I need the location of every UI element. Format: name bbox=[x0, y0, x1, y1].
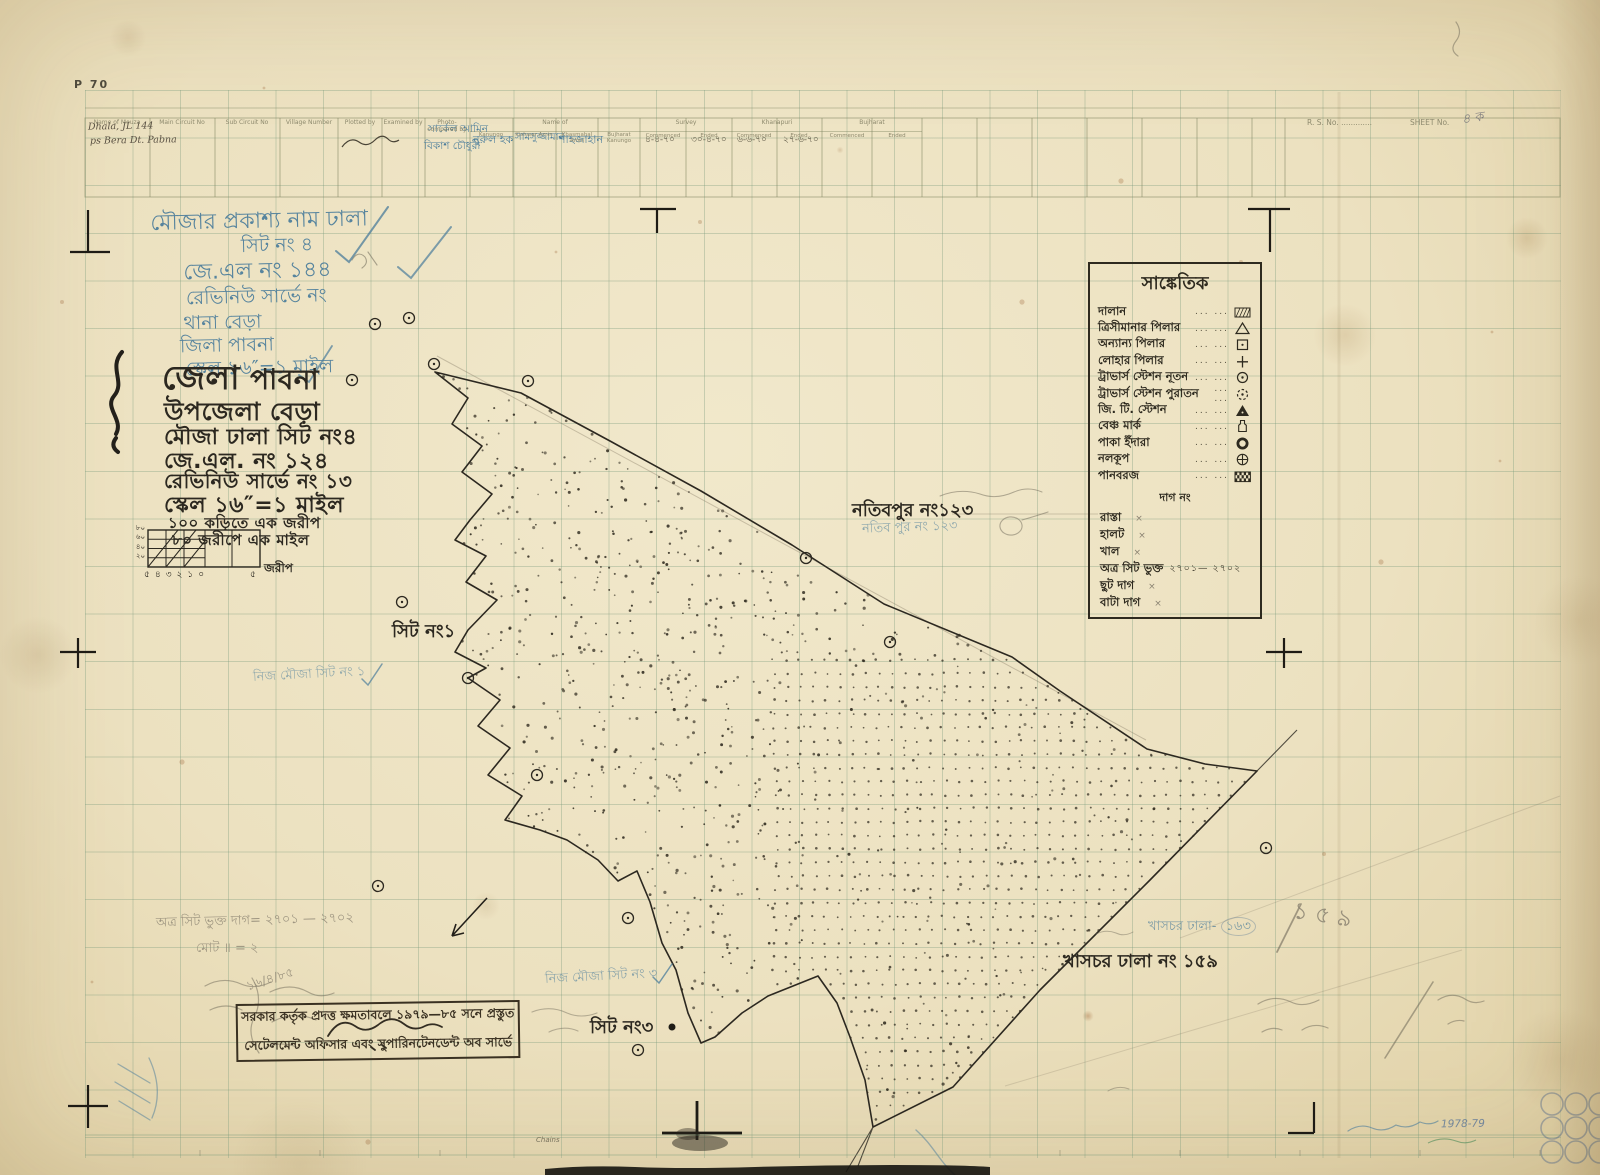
table-column-label: Name of Mouza bbox=[88, 120, 146, 127]
legend-line-item: রাস্তা× bbox=[1090, 510, 1260, 527]
benchmark-icon bbox=[1234, 419, 1252, 434]
table-phase-sub-label: Ended bbox=[688, 133, 730, 139]
legend-title: সাঙ্কেতিক bbox=[1090, 269, 1260, 300]
legend-item: নলকূপ... ... bbox=[1090, 452, 1260, 468]
scalebar-n5: ৫ bbox=[144, 567, 150, 582]
table-column-label: Main Circuit No bbox=[153, 120, 211, 127]
table-subcolumn-label: Kanungo bbox=[470, 132, 512, 138]
table-phase-sub-label: Ended bbox=[876, 133, 918, 139]
legend-line-label: বাটা দাগ bbox=[1100, 594, 1140, 613]
legend-item-dots: ... ... bbox=[1188, 373, 1234, 383]
table-subcolumn-label: Bujharat Kanungo bbox=[598, 132, 640, 145]
legend-line-mark: × bbox=[1138, 531, 1146, 541]
legend-item-dots: ... ... bbox=[1199, 384, 1234, 404]
table-column-label: Photo-compared by bbox=[425, 120, 469, 134]
entry-mouza-ps: ps Bera Dt. Pabna bbox=[90, 134, 177, 147]
entry-circle-officer-2: বিকাশ চৌধুরী bbox=[424, 139, 480, 156]
legend-item: অন্যান্য পিলার... ... bbox=[1090, 337, 1260, 353]
table-column-label: Plotted by bbox=[340, 120, 380, 127]
label-sheet-1: সিট নং১ bbox=[392, 617, 455, 648]
legend-item: পানবরজ... ... bbox=[1090, 468, 1260, 484]
scalebar-60: ৬০ bbox=[129, 533, 145, 542]
cross-icon bbox=[1234, 354, 1252, 369]
table-group-label: Name of bbox=[515, 120, 595, 127]
scalebar-n2: ২ bbox=[177, 567, 183, 582]
table-phase-sub-label: Ended bbox=[778, 133, 820, 139]
table-column-label: Examined by bbox=[382, 120, 424, 127]
scalebar-right-number: ৫ bbox=[250, 567, 256, 582]
legend-item-dots: ... ... bbox=[1167, 406, 1234, 416]
sheet-no-value: ৪ ক bbox=[1461, 108, 1485, 132]
legend-box: সাঙ্কেতিক দালান... ...ত্রিসীমানার পিলার.… bbox=[1088, 262, 1262, 619]
table-phase-sub-label: Commenced bbox=[642, 133, 684, 139]
table-phase-sub-label: Commenced bbox=[733, 133, 775, 139]
plate-number: P 70 bbox=[74, 78, 109, 91]
year-note: 1978-79 bbox=[1441, 1118, 1485, 1131]
hatch-rect-icon bbox=[1234, 305, 1252, 320]
legend-item: ট্রাভার্স স্টেশন নূতন... ... bbox=[1090, 370, 1260, 386]
legend-items: দালান... ...ত্রিসীমানার পিলার... ...অন্য… bbox=[1090, 304, 1260, 484]
label-sheet-3: সিট নং৩ bbox=[590, 1013, 653, 1044]
map-sheet: P 70 R. S. No. ............. SHEET No. ৪… bbox=[0, 0, 1600, 1175]
legend-line-item: বাটা দাগ× bbox=[1090, 595, 1260, 612]
legend-line-item: অত্র সিট ভুক্ত২৭০১— ২৭০২ bbox=[1090, 561, 1260, 578]
table-column-label: Sub Circuit No bbox=[218, 120, 276, 127]
scalebar-n4: ৪ bbox=[155, 567, 161, 582]
chains-label: Chains bbox=[536, 1136, 560, 1144]
legend-item-dots: ... ... bbox=[1126, 307, 1234, 317]
label-village-natibpur-blue: নতিব পুর নং ১২৩ bbox=[862, 516, 958, 540]
sheet-no-label: SHEET No. bbox=[1410, 119, 1470, 128]
table-phase-label: Bujharat bbox=[842, 120, 902, 127]
rs-no-label: R. S. No. ............. bbox=[1307, 119, 1417, 128]
conversion-line-2: ৮০ জরীপে এক মাইল bbox=[172, 529, 309, 554]
table-phase-label: Survey bbox=[656, 120, 716, 127]
map-drawing bbox=[0, 0, 1600, 1175]
scalebar-20: ২০ bbox=[129, 552, 145, 561]
pencil-total-note: মোট ॥ = ২ bbox=[196, 939, 258, 960]
legend-line-mark: × bbox=[1133, 548, 1141, 558]
triangle-solid-icon bbox=[1234, 403, 1252, 418]
legend-line-items: রাস্তা×হালট×খাল×অত্র সিট ভুক্ত২৭০১— ২৭০২… bbox=[1090, 510, 1260, 612]
table-phase-label: Khanapuri bbox=[747, 120, 807, 127]
legend-item: পাকা ইঁদারা... ... bbox=[1090, 435, 1260, 451]
legend-item: লোহার পিলার... ... bbox=[1090, 353, 1260, 369]
legend-item: দালান... ... bbox=[1090, 304, 1260, 320]
legend-item-dots: ... ... bbox=[1180, 324, 1234, 334]
scalebar-unit: জরীপ bbox=[264, 560, 293, 580]
label-khaschar-blue: খাসচর ঢালা- ১৬৩ bbox=[1148, 917, 1256, 938]
legend-item-dots: ... ... bbox=[1150, 438, 1234, 448]
table-subcolumn-label: Kishwar Amin bbox=[513, 132, 555, 138]
triangle-icon bbox=[1234, 321, 1252, 336]
scalebar-n0: ০ bbox=[198, 567, 204, 582]
khaschar-blue-number: ১৬৩ bbox=[1221, 917, 1256, 936]
khaschar-blue-prefix: খাসচর ঢালা- bbox=[1148, 919, 1221, 934]
legend-item: জি. টি. স্টেশন... ... bbox=[1090, 402, 1260, 418]
scalebar-80: ৮০ bbox=[129, 524, 145, 533]
legend-item: ট্রাভার্স স্টেশন পুরাতন... ... bbox=[1090, 386, 1260, 402]
legend-inclusion-range: ২৭০১— ২৭০২ bbox=[1169, 562, 1241, 577]
table-column-label: Village Number bbox=[283, 120, 335, 127]
checker-rect-icon bbox=[1234, 469, 1252, 484]
scalebar-40: ৪০ bbox=[129, 543, 145, 552]
legend-line-mark: × bbox=[1135, 514, 1143, 524]
legend-line-mark: × bbox=[1148, 582, 1156, 592]
scalebar-n3: ৩ bbox=[166, 567, 172, 582]
legend-item-dots: ... ... bbox=[1164, 356, 1234, 366]
legend-dag-heading: দাগ নং bbox=[1090, 489, 1260, 508]
circle-dot-icon bbox=[1234, 370, 1252, 385]
circle-plus-icon bbox=[1234, 452, 1252, 467]
legend-line-item: খাল× bbox=[1090, 544, 1260, 561]
scalebar-n1: ১ bbox=[187, 567, 193, 582]
legend-item-dots: ... ... bbox=[1141, 422, 1234, 432]
legend-item-label: পানবরজ bbox=[1098, 467, 1139, 486]
label-khaschar-dhala: খাসচর ঢালা নং ১৫৯ bbox=[1063, 947, 1218, 978]
scalebar-left-labels: ৮০ ৬০ ৪০ ২০ bbox=[129, 524, 145, 561]
table-phase-sub-label: Commenced bbox=[826, 133, 868, 139]
legend-item-dots: ... ... bbox=[1129, 455, 1234, 465]
circle-dot-dashed-icon bbox=[1234, 387, 1252, 402]
stamp-line-2: সেটেলমেন্ট অফিসার এবং সুপারিনটেনডেন্ট অব… bbox=[238, 1034, 518, 1058]
approval-stamp: সরকার কর্তৃক প্রদত্ত ক্ষমতাবলে ১৯৭৯—৮৫ স… bbox=[236, 1000, 521, 1062]
square-dot-icon bbox=[1234, 337, 1252, 352]
legend-line-item: ছুট দাগ× bbox=[1090, 578, 1260, 595]
legend-item: বেঞ্চ মার্ক... ... bbox=[1090, 419, 1260, 435]
stamp-line-1: সরকার কর্তৃক প্রদত্ত ক্ষমতাবলে ১৯৭৯—৮৫ স… bbox=[238, 1005, 518, 1029]
table-subcolumn-label: Khasmahal Amin bbox=[556, 132, 598, 145]
title-block: জেলাপাবনা উপজেলা বেড়া মৌজা ঢালা সিট নং৪… bbox=[162, 352, 492, 542]
legend-line-item: হালট× bbox=[1090, 527, 1260, 544]
scalebar-bottom-numbers: ৫ ৪ ৩ ২ ১ ০ bbox=[144, 567, 204, 582]
legend-item: ত্রিসীমানার পিলার... ... bbox=[1090, 320, 1260, 336]
legend-line-mark: × bbox=[1154, 599, 1162, 609]
legend-item-dots: ... ... bbox=[1139, 471, 1234, 481]
ring-icon bbox=[1234, 436, 1252, 451]
legend-item-dots: ... ... bbox=[1165, 340, 1234, 350]
